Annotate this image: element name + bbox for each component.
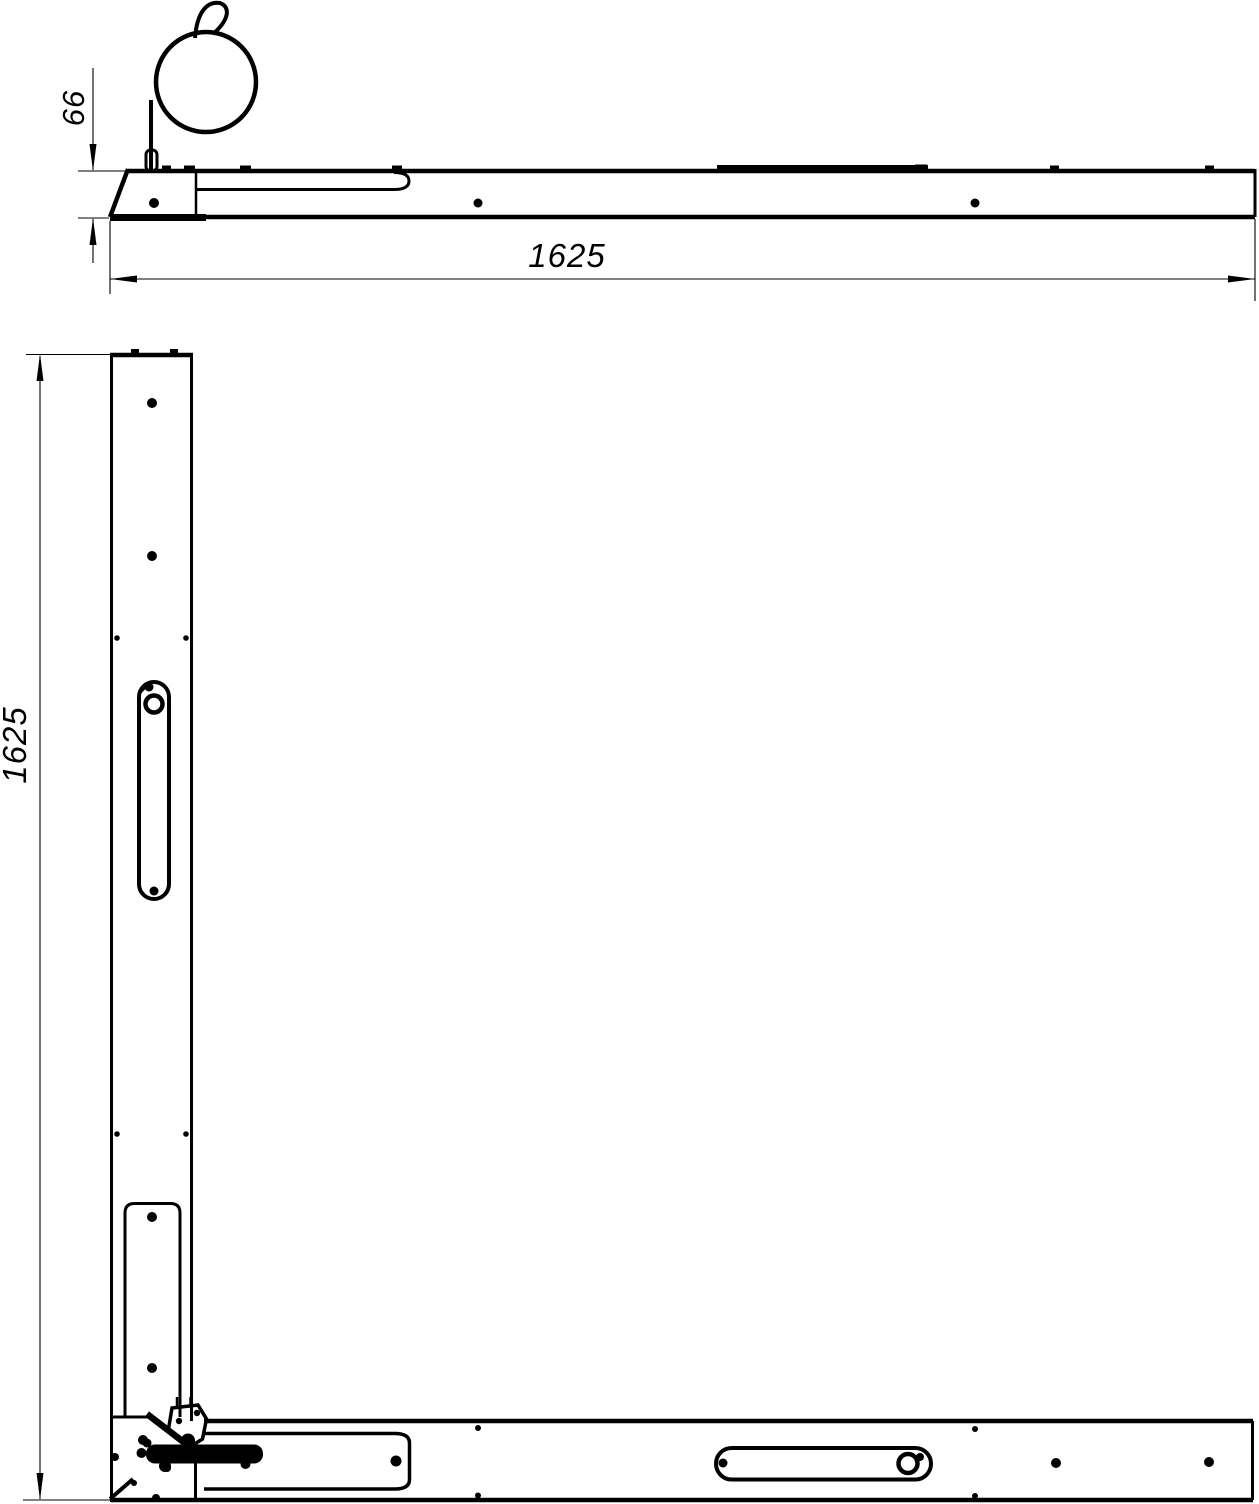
slot-pin-ring: [899, 1454, 918, 1473]
dimension-1625-length: 1625: [110, 219, 1255, 301]
dimension-66: 66: [56, 68, 127, 263]
dim-arrow-down: [90, 144, 97, 171]
rivet-hole: [1204, 1457, 1214, 1467]
rivet-hole: [163, 1464, 171, 1472]
rivet-hole: [475, 1493, 481, 1499]
rivet-hole: [971, 199, 980, 208]
lever-knob: [241, 1459, 251, 1469]
slot-pin-ring: [146, 696, 163, 713]
horizontal-slot: [716, 1448, 931, 1480]
rivet-hole: [114, 635, 120, 641]
bracket-hole: [194, 1410, 200, 1416]
fastener-tick: [240, 166, 251, 171]
cable-coil: [146, 3, 256, 171]
bracket-hole: [176, 1418, 182, 1424]
dim-arrow-left: [110, 276, 137, 283]
coil-circle: [156, 32, 256, 132]
rivet-hole: [1051, 1458, 1061, 1468]
rivet-hole: [972, 1426, 978, 1432]
rivet-hole: [391, 1456, 402, 1467]
rivet-hole: [147, 551, 157, 561]
dim-length-label: 1625: [528, 237, 605, 274]
plan-view: 1625: [0, 349, 1253, 1502]
slot-dot: [145, 683, 154, 692]
rivet-hole: [147, 1363, 157, 1373]
lever-knob: [181, 1434, 195, 1448]
vertical-slot: [139, 682, 169, 899]
lever-knob: [137, 1448, 147, 1458]
plate-outline: [125, 1204, 180, 1418]
rivet-hole: [111, 1453, 119, 1461]
engineering-drawing-canvas: 66 1625: [0, 0, 1259, 1504]
end-bracket-slant: [110, 169, 128, 217]
fastener-tick: [915, 165, 927, 170]
rivet-hole: [143, 1439, 152, 1448]
rivet-hole: [183, 1131, 189, 1137]
slot-dot: [719, 1459, 728, 1468]
beam-side-profile: [110, 165, 1255, 218]
horizontal-beam: [111, 1421, 1253, 1500]
fastener-tick: [170, 349, 178, 354]
rivet-hole: [474, 199, 483, 208]
lower-plate: [125, 1204, 180, 1418]
rivet-hole: [147, 398, 157, 408]
rivet-hole: [149, 198, 159, 208]
corner-mechanism: [110, 1397, 263, 1502]
fastener-tick: [131, 349, 139, 354]
dim-arrow-up: [37, 354, 44, 381]
fastener-tick: [162, 166, 171, 171]
corner-diagonal-mark: [110, 1479, 133, 1499]
fastener-tick: [1205, 166, 1214, 171]
rivet-hole: [114, 1131, 120, 1137]
slot-dot: [150, 887, 159, 896]
rivet-hole: [147, 1212, 157, 1222]
dim-arrow-up: [90, 218, 97, 245]
dim-height-label: 66: [56, 90, 91, 126]
fastener-tick: [1050, 166, 1059, 171]
slot-dot: [916, 1453, 924, 1461]
fastener-tick: [392, 166, 402, 171]
tongue-plate: [196, 173, 409, 190]
side-view: 66 1625: [56, 3, 1255, 301]
vertical-beam: [110, 349, 193, 1502]
dim-arrow-right: [1228, 276, 1255, 283]
dimension-1625-height: 1625: [0, 354, 110, 1500]
rivet-hole: [475, 1425, 481, 1431]
fastener-tick: [184, 166, 195, 171]
plan-dim-height-label: 1625: [0, 706, 33, 783]
dim-arrow-down: [37, 1473, 44, 1500]
rivet-hole: [183, 635, 189, 641]
rivet-hole: [972, 1493, 978, 1499]
